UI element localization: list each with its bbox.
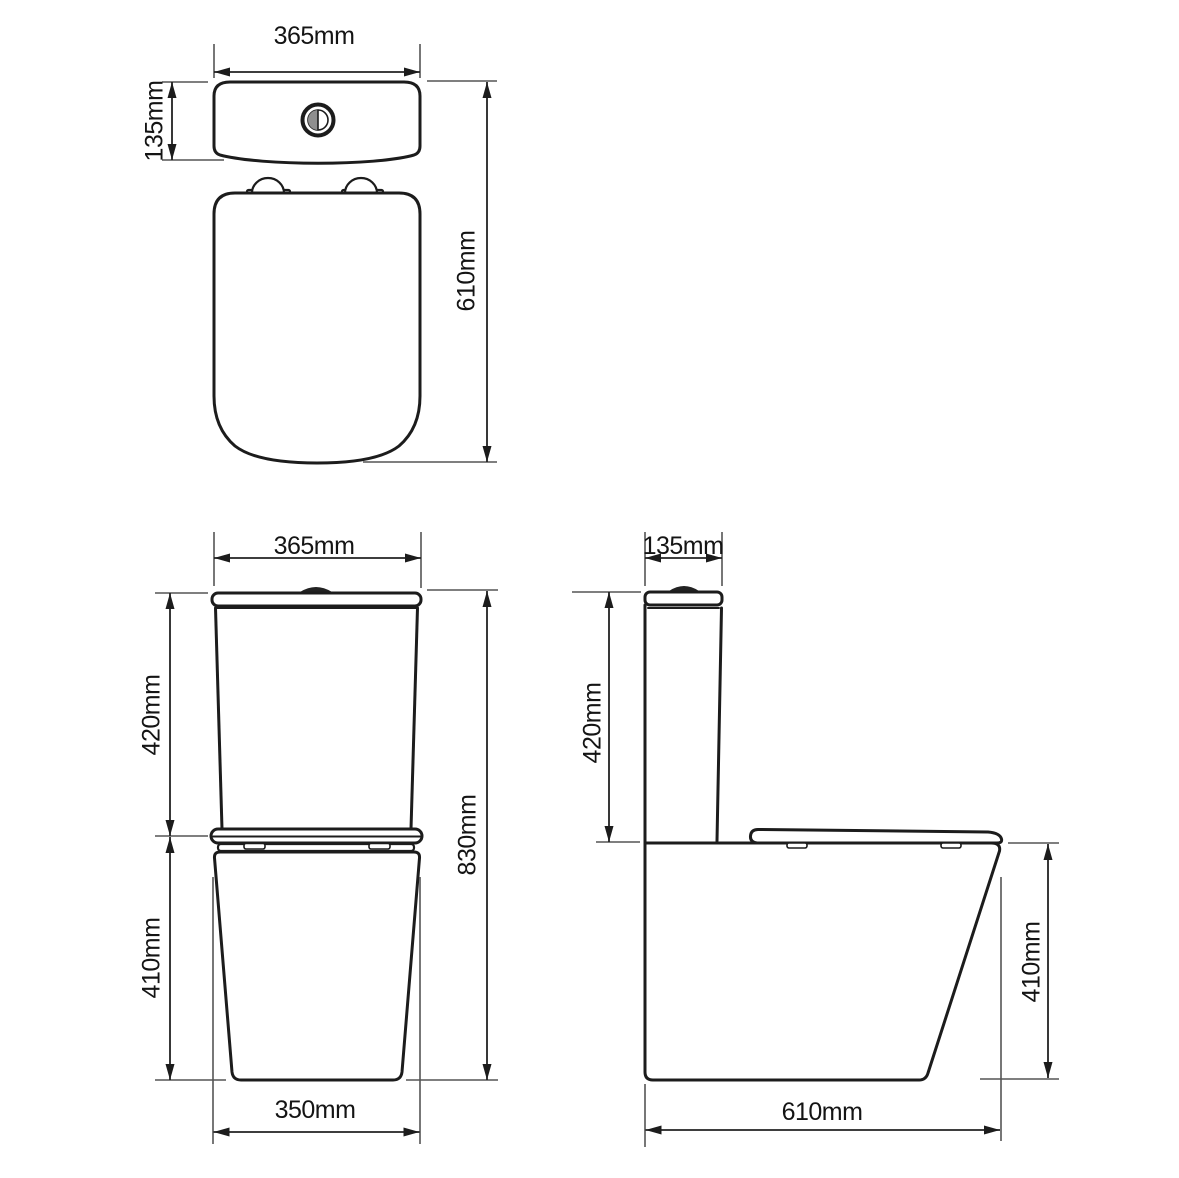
front-view-seat-buffer-right — [369, 844, 390, 850]
front-view-pan-outline — [214, 852, 419, 1080]
front-view-seat-buffer-left — [244, 844, 265, 850]
side-pan-height-dimension-label: 410mm — [1017, 922, 1045, 1003]
side-cistern-depth-dimension-label: 135mm — [643, 532, 724, 560]
front-total-height-dimension-label: 830mm — [453, 795, 481, 876]
side-view-seat-buffer-left — [787, 843, 807, 848]
toilet-dimension-drawing: 365mm 135mm 610mm 365mm — [0, 0, 1179, 1178]
side-view-seat-buffer-right — [941, 843, 961, 848]
side-view-cistern-side-back — [717, 608, 722, 841]
front-view-cistern-lid — [212, 593, 421, 606]
side-view-pan-outline — [645, 843, 1000, 1080]
side-total-depth-dimension-label: 610mm — [782, 1098, 863, 1126]
side-view: 135mm 420mm 410mm 610mm — [572, 532, 1059, 1147]
side-view-seat-lid-outline — [750, 830, 1001, 844]
front-view: 365mm 420mm 410mm 830mm 350mm — [137, 532, 498, 1144]
top-cistern-depth-dimension-label: 135mm — [140, 81, 168, 162]
front-view-cistern-side-left — [216, 608, 223, 829]
top-view: 365mm 135mm 610mm — [140, 22, 497, 463]
front-pan-height-dimension-label: 410mm — [137, 918, 165, 999]
side-view-flush-button-icon — [669, 586, 699, 591]
front-width-dimension-label: 365mm — [274, 532, 355, 560]
front-cistern-height-dimension-label: 420mm — [137, 675, 165, 756]
side-cistern-height-dimension-label: 420mm — [578, 683, 606, 764]
technical-drawing-canvas: 365mm 135mm 610mm 365mm — [0, 0, 1179, 1178]
front-base-width-dimension-label: 350mm — [275, 1096, 356, 1124]
front-view-flush-button-icon — [300, 587, 332, 592]
top-total-depth-dimension-label: 610mm — [452, 231, 480, 312]
top-width-dimension-label: 365mm — [274, 22, 355, 50]
top-view-seat-lid-outline — [214, 193, 420, 463]
seat-hinge-right — [345, 178, 377, 193]
side-view-cistern-lid — [645, 592, 722, 605]
front-view-cistern-side-right — [411, 608, 418, 829]
seat-hinge-left — [252, 178, 284, 193]
